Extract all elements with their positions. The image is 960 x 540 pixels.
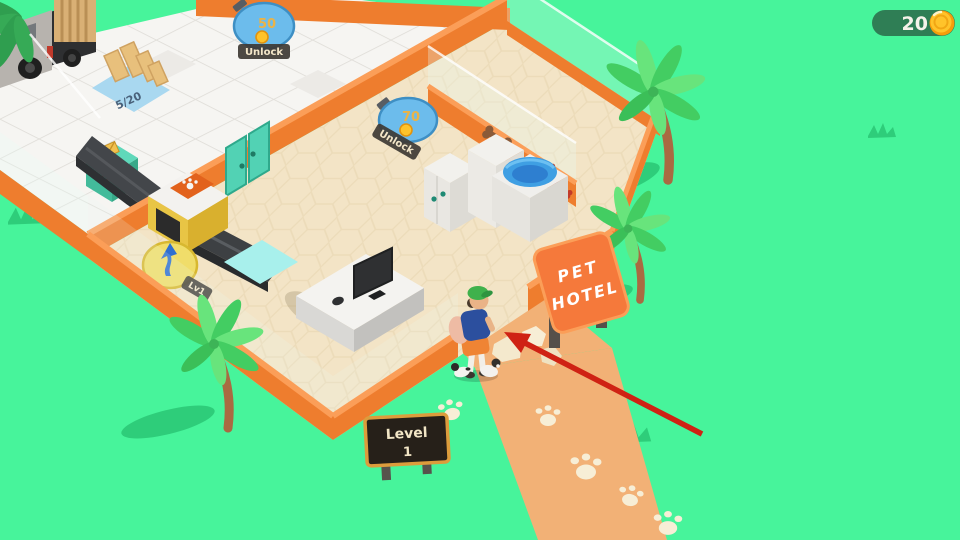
unlock-label: Unlock: [245, 47, 283, 58]
coin-counter: 20: [872, 10, 955, 36]
coin-icon: [930, 11, 955, 36]
coin-icon: [400, 124, 412, 136]
coin-count: 20: [902, 13, 928, 35]
game-scene: 5/20 0/8: [0, 0, 960, 540]
unlock-button-back-room[interactable]: 50 Unlock: [232, 0, 294, 59]
unlock-price: 70: [402, 110, 420, 125]
unlock-price: 50: [258, 17, 276, 32]
coin-icon: [256, 31, 268, 43]
pet-bed: [503, 157, 557, 187]
level-sign-value: 1: [403, 445, 413, 460]
level-sign-label: Level: [385, 425, 428, 443]
game-viewport: 5/20 0/8: [0, 0, 960, 540]
